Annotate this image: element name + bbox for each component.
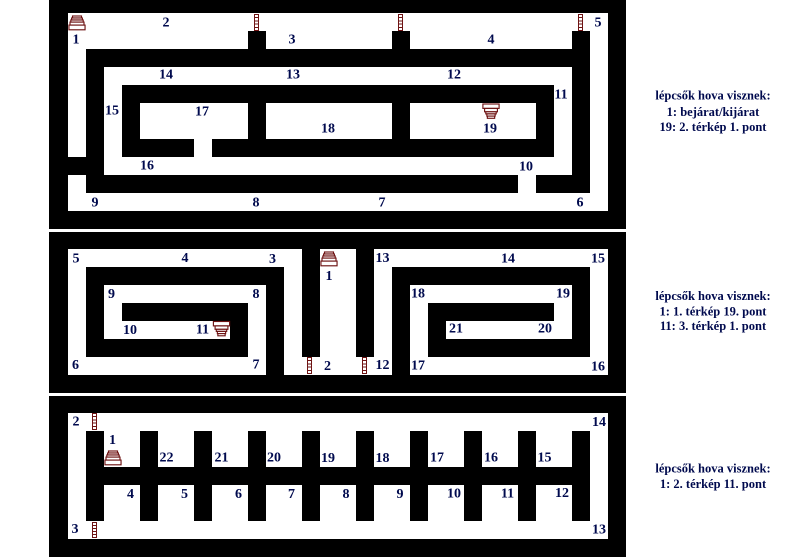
svg-text:14: 14 [592, 415, 606, 430]
svg-text:1: 1. térkép 19. pont: 1: 1. térkép 19. pont [660, 305, 768, 319]
svg-text:17: 17 [430, 451, 444, 466]
svg-text:4: 4 [488, 33, 495, 48]
svg-text:6: 6 [235, 487, 242, 502]
svg-text:9: 9 [108, 287, 115, 302]
svg-text:6: 6 [72, 358, 79, 373]
svg-text:22: 22 [160, 451, 174, 466]
svg-text:3: 3 [289, 33, 296, 48]
svg-text:11: 11 [196, 323, 209, 338]
svg-text:3: 3 [269, 252, 276, 267]
svg-text:7: 7 [379, 196, 386, 211]
svg-text:2: 2 [163, 16, 170, 31]
svg-text:11: 11 [554, 88, 567, 103]
svg-text:lépcsők hova visznek:: lépcsők hova visznek: [655, 89, 770, 103]
svg-text:20: 20 [267, 451, 281, 466]
svg-text:2: 2 [73, 415, 80, 430]
svg-text:5: 5 [181, 487, 188, 502]
svg-text:17: 17 [411, 359, 425, 374]
svg-text:15: 15 [538, 451, 552, 466]
svg-text:15: 15 [591, 252, 605, 267]
svg-text:14: 14 [159, 68, 173, 83]
svg-text:13: 13 [592, 523, 606, 538]
svg-text:19: 19 [556, 287, 570, 302]
svg-text:12: 12 [555, 486, 569, 501]
svg-text:5: 5 [595, 16, 602, 31]
svg-text:10: 10 [519, 160, 533, 175]
svg-text:10: 10 [123, 323, 137, 338]
svg-text:20: 20 [538, 322, 552, 337]
svg-text:18: 18 [411, 287, 425, 302]
svg-text:1: 1 [326, 269, 333, 284]
svg-text:15: 15 [105, 104, 119, 119]
svg-text:19: 2. térkép 1. pont: 19: 2. térkép 1. pont [660, 120, 768, 134]
svg-text:2: 2 [324, 359, 331, 374]
svg-text:1: bejárat/kijárat: 1: bejárat/kijárat [667, 105, 761, 119]
svg-text:lépcsők hova visznek:: lépcsők hova visznek: [655, 462, 770, 476]
svg-text:4: 4 [182, 251, 189, 266]
svg-text:16: 16 [484, 451, 498, 466]
svg-text:7: 7 [288, 487, 295, 502]
svg-text:19: 19 [321, 451, 335, 466]
svg-text:9: 9 [92, 196, 99, 211]
svg-text:18: 18 [376, 451, 390, 466]
svg-text:12: 12 [376, 358, 390, 373]
svg-text:1: 2. térkép 11. pont: 1: 2. térkép 11. pont [660, 477, 767, 491]
svg-text:14: 14 [501, 252, 515, 267]
svg-text:18: 18 [321, 122, 335, 137]
svg-text:11: 11 [501, 487, 514, 502]
svg-text:3: 3 [72, 522, 79, 537]
svg-text:17: 17 [195, 105, 209, 120]
svg-text:8: 8 [253, 287, 260, 302]
svg-text:7: 7 [253, 358, 260, 373]
svg-text:6: 6 [577, 196, 584, 211]
svg-text:16: 16 [591, 360, 605, 375]
svg-text:21: 21 [449, 322, 463, 337]
svg-text:lépcsők hova visznek:: lépcsők hova visznek: [655, 289, 770, 303]
svg-text:11: 3. térkép 1. pont: 11: 3. térkép 1. pont [660, 319, 767, 333]
svg-text:21: 21 [215, 451, 229, 466]
svg-text:13: 13 [376, 251, 390, 266]
svg-text:5: 5 [73, 252, 80, 267]
svg-text:1: 1 [109, 433, 116, 448]
svg-text:1: 1 [73, 33, 80, 48]
svg-text:4: 4 [127, 487, 134, 502]
svg-text:10: 10 [447, 487, 461, 502]
svg-text:8: 8 [343, 487, 350, 502]
svg-text:13: 13 [286, 68, 300, 83]
svg-text:9: 9 [397, 487, 404, 502]
svg-text:8: 8 [253, 196, 260, 211]
svg-text:19: 19 [483, 122, 497, 137]
svg-text:16: 16 [140, 159, 154, 174]
svg-text:12: 12 [447, 68, 461, 83]
